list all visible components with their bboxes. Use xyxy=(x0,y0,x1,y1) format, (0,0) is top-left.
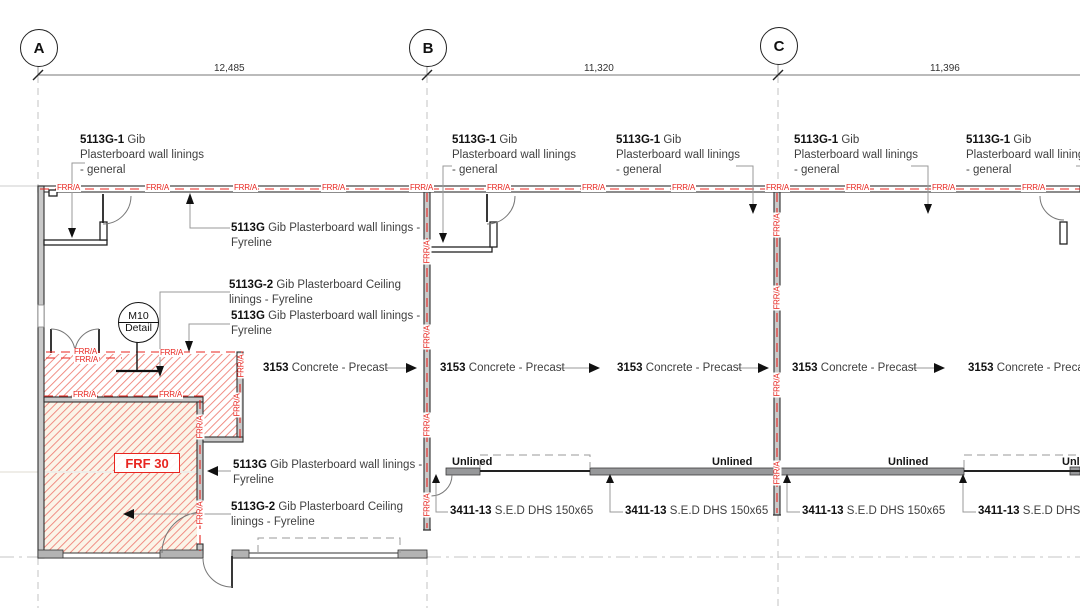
fire-rating-mark: FRR/A xyxy=(197,500,205,525)
label-ceiling-mid: 5113G-2 Gib Plasterboard Ceiling linings… xyxy=(229,278,401,308)
detail-marker-text: Detail xyxy=(125,323,152,334)
fire-rating-mark: FRR/A xyxy=(765,184,790,192)
label-precast-2: 3153 Concrete - Precast xyxy=(440,361,565,376)
label-wall-general-1: 5113G-1 Gib Plasterboard wall linings - … xyxy=(80,133,204,178)
fire-rating-mark: FRR/A xyxy=(774,372,782,397)
left-wall xyxy=(38,186,44,558)
label-precast-4: 3153 Concrete - Precast xyxy=(792,361,917,376)
label-dhs-2: 3411-13 S.E.D DHS 150x65 xyxy=(625,504,768,519)
interior-partitions xyxy=(44,190,1067,252)
fire-rating-mark: FRR/A xyxy=(581,184,606,192)
label-wall-fyreline-mid: 5113G Gib Plasterboard wall linings - Fy… xyxy=(231,309,420,339)
label-wall-fyreline-low: 5113G Gib Plasterboard wall linings - Fy… xyxy=(233,458,422,488)
fire-rating-mark: FRR/A xyxy=(197,414,205,439)
fire-rating-mark: FRR/A xyxy=(671,184,696,192)
fire-rating-mark: FRR/A xyxy=(1021,184,1046,192)
fire-rating-mark: FRR/A xyxy=(486,184,511,192)
dimension-label-ab: 12,485 xyxy=(214,63,245,74)
fire-rating-mark: FRR/A xyxy=(931,184,956,192)
floor-plan-canvas: A B C 12,485 11,320 11,396 5113G-1 Gib P… xyxy=(0,0,1080,608)
fire-rating-mark: FRR/A xyxy=(74,356,99,364)
dimension-label-cd: 11,396 xyxy=(930,63,960,74)
label-unlined-1: Unlined xyxy=(452,456,492,468)
label-wall-general-2: 5113G-1 Gib Plasterboard wall linings - … xyxy=(452,133,576,178)
grid-bubble-c: C xyxy=(760,27,798,65)
fire-rating-mark: FRR/A xyxy=(56,184,81,192)
label-precast-5: 3153 Concrete - Precast xyxy=(968,361,1080,376)
fire-rating-mark: FRR/A xyxy=(424,492,432,517)
fire-rating-mark: FRR/A xyxy=(845,184,870,192)
label-precast-3: 3153 Concrete - Precast xyxy=(617,361,742,376)
label-unlined-4: Unlined xyxy=(1062,456,1080,468)
detail-marker-m10: M10 Detail xyxy=(118,302,159,343)
label-unlined-2: Unlined xyxy=(712,456,752,468)
dimension-label-bc: 11,320 xyxy=(584,63,614,74)
label-wall-general-3: 5113G-1 Gib Plasterboard wall linings - … xyxy=(616,133,740,178)
frf30-tag: FRF 30 xyxy=(114,453,180,473)
fire-rating-mark: FRR/A xyxy=(321,184,346,192)
fire-rating-mark: FRR/A xyxy=(238,353,246,378)
label-ceiling-low: 5113G-2 Gib Plasterboard Ceiling linings… xyxy=(231,500,403,530)
grid-stems xyxy=(38,63,778,75)
fire-rating-mark: FRR/A xyxy=(159,349,184,357)
fire-rating-mark: FRR/A xyxy=(158,391,183,399)
fire-strip-cap xyxy=(203,437,243,442)
grid-bubble-b: B xyxy=(409,29,447,67)
label-dhs-3: 3411-13 S.E.D DHS 150x65 xyxy=(802,504,945,519)
fire-rating-mark: FRR/A xyxy=(774,460,782,485)
label-precast-1: 3153 Concrete - Precast xyxy=(263,361,388,376)
fire-rating-mark: FRR/A xyxy=(233,184,258,192)
fire-rating-mark: FRR/A xyxy=(774,212,782,237)
label-unlined-3: Unlined xyxy=(888,456,928,468)
fire-rating-mark: FRR/A xyxy=(409,184,434,192)
label-dhs-1: 3411-13 S.E.D DHS 150x65 xyxy=(450,504,593,519)
fire-rating-mark: FRR/A xyxy=(424,412,432,437)
fire-rating-mark: FRR/A xyxy=(234,392,242,417)
fire-rating-mark: FRR/A xyxy=(145,184,170,192)
fire-rating-mark: FRR/A xyxy=(72,391,97,399)
fire-rating-mark: FRR/A xyxy=(424,324,432,349)
label-wall-general-4: 5113G-1 Gib Plasterboard wall linings - … xyxy=(794,133,918,178)
label-dhs-4: 3411-13 S.E.D DHS 150x65 xyxy=(978,504,1080,519)
label-wall-fyreline-top: 5113G Gib Plasterboard wall linings - Fy… xyxy=(231,221,420,251)
fire-hatch-room xyxy=(44,402,197,553)
fire-rating-mark: FRR/A xyxy=(774,285,782,310)
label-wall-general-5: 5113G-1 Gib Plasterboard wall linings - … xyxy=(966,133,1080,178)
fire-rating-mark: FRR/A xyxy=(424,239,432,264)
left-wall-window xyxy=(38,305,44,327)
grid-bubble-a: A xyxy=(20,29,58,67)
leader-lines xyxy=(72,163,1080,514)
